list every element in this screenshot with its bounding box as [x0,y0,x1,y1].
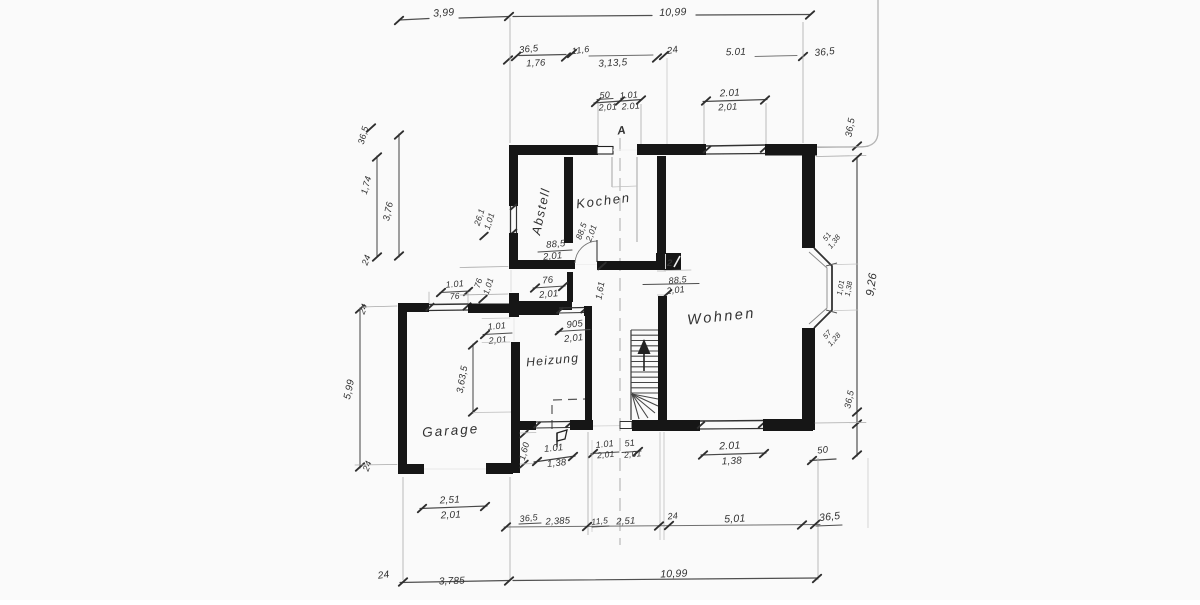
svg-text:2,385: 2,385 [544,515,571,527]
svg-text:2,01: 2,01 [596,449,615,461]
svg-text:2.01: 2.01 [620,100,640,111]
svg-text:51: 51 [624,437,635,448]
svg-text:2.01: 2.01 [718,87,740,99]
svg-text:2,01: 2,01 [487,334,507,346]
svg-text:2,01: 2,01 [563,332,584,345]
svg-text:A: A [616,124,627,137]
svg-text:36,5: 36,5 [519,43,540,56]
svg-text:24: 24 [665,44,679,57]
svg-text:11,5: 11,5 [591,515,609,527]
svg-text:36,5: 36,5 [519,512,539,524]
svg-text:2,01: 2,01 [542,250,563,263]
svg-text:3,13,5: 3,13,5 [598,57,628,70]
svg-text:1.01: 1.01 [487,320,506,332]
svg-text:1,38: 1,38 [721,455,742,467]
svg-text:1.01: 1.01 [445,278,464,290]
svg-text:1,76: 1,76 [526,57,546,69]
svg-text:50: 50 [817,444,830,456]
svg-text:10,99: 10,99 [659,6,687,19]
svg-text:2,51: 2,51 [438,494,460,506]
svg-text:2,01: 2,01 [439,509,461,521]
svg-text:36,5: 36,5 [818,510,840,524]
svg-text:2: 2 [666,258,673,269]
svg-text:10,99: 10,99 [660,568,688,581]
svg-text:1.01: 1.01 [619,89,638,100]
svg-text:3,99: 3,99 [433,6,455,19]
svg-text:24: 24 [376,569,390,582]
svg-text:76: 76 [542,275,554,287]
svg-text:905: 905 [566,318,584,331]
svg-text:5.01: 5.01 [726,47,747,59]
svg-text:1.01: 1.01 [544,442,564,455]
svg-text:2.01: 2.01 [718,439,741,452]
svg-text:2,01: 2,01 [538,288,559,301]
svg-text:76: 76 [449,291,460,302]
svg-text:2,01: 2,01 [665,284,685,296]
svg-text:24: 24 [666,510,678,521]
svg-text:2,51: 2,51 [615,516,636,528]
svg-text:2,01: 2,01 [597,101,617,112]
svg-text:3,785: 3,785 [439,576,466,588]
svg-text:2,01: 2,01 [717,102,738,114]
svg-text:88,5: 88,5 [546,238,567,251]
svg-text:1,38: 1,38 [547,457,568,470]
svg-text:36,5: 36,5 [814,46,836,59]
svg-text:2,01: 2,01 [623,448,642,460]
svg-text:5,01: 5,01 [724,512,746,525]
